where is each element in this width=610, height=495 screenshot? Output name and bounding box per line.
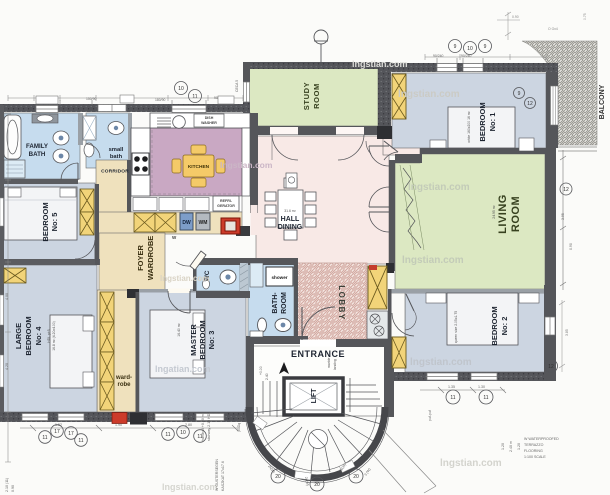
svg-text:3.95: 3.95	[561, 213, 565, 220]
svg-text:bath: bath	[110, 154, 123, 160]
svg-text:DINING: DINING	[278, 224, 303, 231]
svg-text:2.40 m: 2.40 m	[509, 441, 513, 452]
svg-text:12: 12	[548, 364, 554, 370]
svg-text:W GUSTERSEGEN: W GUSTERSEGEN	[215, 459, 219, 491]
svg-text:W WATERPROOFED: W WATERPROOFED	[524, 437, 559, 441]
svg-text:lngstian.com: lngstian.com	[408, 182, 470, 193]
svg-text:shower: shower	[271, 275, 287, 280]
svg-text:lngstian.com: lngstian.com	[160, 274, 209, 283]
svg-text:lngstian.com: lngstian.com	[352, 59, 408, 69]
svg-text:16.40 m²: 16.40 m²	[177, 322, 181, 336]
svg-text:handrail +0.90 m: handrail +0.90 m	[201, 414, 205, 441]
svg-text:11: 11	[192, 94, 197, 100]
svg-text:1.35: 1.35	[448, 385, 455, 389]
svg-text:90/240: 90/240	[461, 54, 471, 58]
svg-text:FOYER: FOYER	[136, 245, 145, 271]
svg-text:No: 5: No: 5	[50, 213, 59, 232]
svg-text:ROOM: ROOM	[312, 83, 321, 109]
svg-text:LARGE: LARGE	[14, 323, 23, 349]
svg-text:robe: robe	[117, 382, 131, 388]
svg-text:LIVING: LIVING	[497, 194, 509, 234]
svg-text:REFRI-: REFRI-	[220, 199, 233, 203]
svg-text:WM: WM	[199, 220, 208, 226]
svg-text:No: 1: No: 1	[488, 113, 497, 132]
svg-text:CORRIDOR: CORRIDOR	[101, 169, 129, 175]
svg-text:(E.Dq 5/2): (E.Dq 5/2)	[237, 416, 241, 432]
svg-text:0.90: 0.90	[569, 243, 573, 250]
svg-text:9: 9	[518, 91, 521, 97]
svg-text:queen size 2.05x1.75: queen size 2.05x1.75	[454, 311, 458, 343]
svg-text:10: 10	[178, 86, 184, 92]
svg-text:9: 9	[484, 44, 487, 50]
svg-text:90/240: 90/240	[433, 54, 443, 58]
svg-text:lngstian.com: lngstian.com	[402, 255, 464, 266]
svg-text:WARDROBE: WARDROBE	[146, 236, 155, 281]
svg-text:white 160x200 16 m²: white 160x200 16 m²	[467, 110, 471, 142]
svg-text:11: 11	[42, 435, 47, 441]
svg-text:LIFT: LIFT	[311, 388, 318, 403]
svg-text:KITCHEN: KITCHEN	[188, 164, 210, 170]
svg-text:lngstian.com: lngstian.com	[220, 160, 273, 170]
svg-text:10: 10	[180, 430, 186, 436]
svg-text:stairway 2.10 HDL: stairway 2.10 HDL	[207, 412, 211, 441]
svg-text:11: 11	[78, 438, 83, 444]
svg-text:small: small	[109, 147, 124, 153]
svg-text:12: 12	[527, 101, 533, 107]
svg-text:BATH: BATH	[29, 151, 46, 158]
svg-text:10: 10	[467, 46, 473, 52]
svg-text:24.95 m²: 24.95 m²	[492, 204, 496, 218]
svg-text:FAMILY: FAMILY	[26, 143, 49, 150]
svg-text:9: 9	[454, 44, 457, 50]
svg-text:2.80: 2.80	[185, 423, 192, 427]
svg-text:DW: DW	[182, 220, 191, 226]
svg-text:ROOM: ROOM	[510, 196, 522, 232]
svg-text:FLOORING: FLOORING	[524, 449, 543, 453]
svg-text:lngstian.com: lngstian.com	[398, 89, 460, 100]
svg-text:17: 17	[68, 431, 74, 437]
svg-text:KASZKAT 17x17.6: KASZKAT 17x17.6	[221, 461, 225, 491]
svg-text:lngstian.com: lngstian.com	[162, 482, 218, 492]
svg-text:puf-puf: puf-puf	[428, 410, 432, 421]
svg-text:4.00: 4.00	[5, 293, 9, 300]
svg-text:HALL: HALL	[281, 216, 300, 223]
svg-text:lngstian.com: lngstian.com	[440, 458, 502, 469]
svg-text:0.90: 0.90	[11, 485, 15, 492]
svg-text:O Ox4: O Ox4	[548, 27, 558, 31]
svg-text:16.8 m² (4.20x4.00): 16.8 m² (4.20x4.00)	[52, 321, 56, 351]
svg-text:+0.00: +0.00	[259, 366, 263, 375]
svg-text:3.85: 3.85	[565, 329, 569, 336]
svg-text:1:100 SCALE: 1:100 SCALE	[524, 455, 546, 459]
svg-text:150/90: 150/90	[86, 97, 96, 101]
svg-text:lngstian.com: lngstian.com	[410, 357, 472, 368]
svg-text:2.10 (11): 2.10 (11)	[5, 478, 9, 492]
svg-text:20: 20	[314, 482, 320, 488]
svg-text:No: 2: No: 2	[500, 317, 509, 336]
svg-text:lngatian.com: lngatian.com	[155, 364, 211, 374]
svg-text:HDL p+5: HDL p+5	[47, 329, 51, 342]
svg-text:1.90: 1.90	[115, 423, 122, 427]
svg-text:ENTRANCE: ENTRANCE	[291, 349, 345, 359]
svg-text:0.90: 0.90	[512, 15, 519, 19]
svg-text:BEDROOM: BEDROOM	[198, 320, 207, 359]
svg-text:1.20: 1.20	[501, 443, 505, 450]
svg-text:1.20: 1.20	[517, 443, 521, 450]
svg-text:LOBBY: LOBBY	[337, 285, 346, 321]
svg-text:ward-: ward-	[115, 375, 132, 381]
svg-text:11: 11	[165, 432, 170, 438]
svg-text:DISH: DISH	[205, 116, 214, 120]
svg-text:BALCONY: BALCONY	[599, 84, 606, 119]
svg-text:CECA 5: CECA 5	[235, 80, 239, 92]
svg-text:1.52: 1.52	[55, 423, 62, 427]
svg-text:No: 4: No: 4	[34, 326, 43, 346]
svg-text:marble: marble	[327, 358, 331, 368]
svg-text:BEDROOM: BEDROOM	[41, 202, 50, 241]
svg-text:WASHER: WASHER	[201, 121, 217, 125]
svg-text:MASTER: MASTER	[189, 324, 198, 356]
svg-text:BEDROOM: BEDROOM	[478, 102, 487, 141]
svg-text:12: 12	[563, 187, 569, 193]
svg-text:180/90: 180/90	[155, 98, 165, 102]
svg-text:No: 3: No: 3	[207, 331, 216, 350]
svg-text:BEDROOM: BEDROOM	[24, 316, 33, 355]
svg-text:TERRAZZO: TERRAZZO	[524, 443, 544, 447]
svg-text:2.40: 2.40	[265, 373, 269, 380]
svg-text:GERATOR: GERATOR	[217, 204, 235, 208]
svg-text:4.20: 4.20	[5, 363, 9, 370]
svg-text:1.30: 1.30	[478, 385, 485, 389]
svg-text:11: 11	[483, 395, 488, 401]
svg-text:STUDY: STUDY	[302, 82, 311, 110]
svg-text:landing: landing	[333, 359, 337, 370]
svg-text:0.75: 0.75	[583, 13, 587, 20]
svg-text:11: 11	[450, 395, 455, 401]
svg-text:20: 20	[353, 474, 359, 480]
svg-text:20: 20	[275, 474, 281, 480]
svg-text:31.6 m²: 31.6 m²	[284, 209, 296, 213]
svg-text:ROOM: ROOM	[281, 292, 288, 314]
svg-text:BEDROOM: BEDROOM	[490, 306, 499, 345]
svg-text:BATH-: BATH-	[272, 292, 279, 314]
svg-text:17: 17	[54, 429, 60, 435]
